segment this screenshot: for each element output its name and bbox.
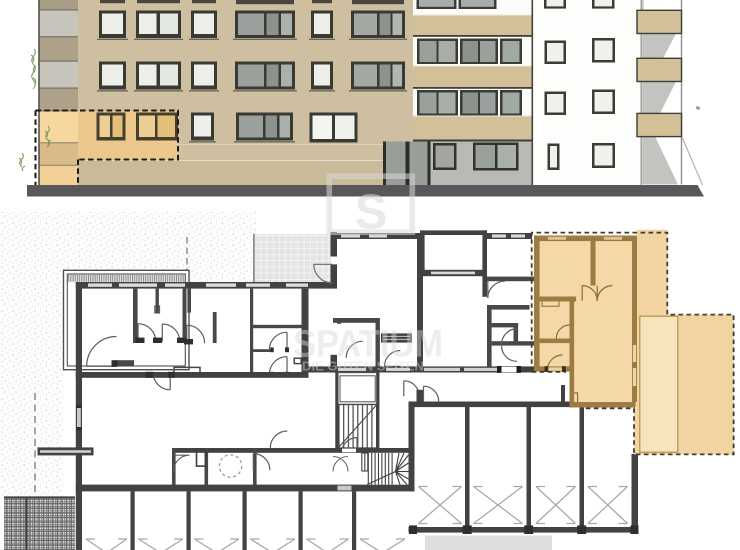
svg-text:S: S bbox=[355, 186, 388, 240]
svg-text:DIE GUTEN SEITEN: DIE GUTEN SEITEN bbox=[302, 359, 424, 374]
